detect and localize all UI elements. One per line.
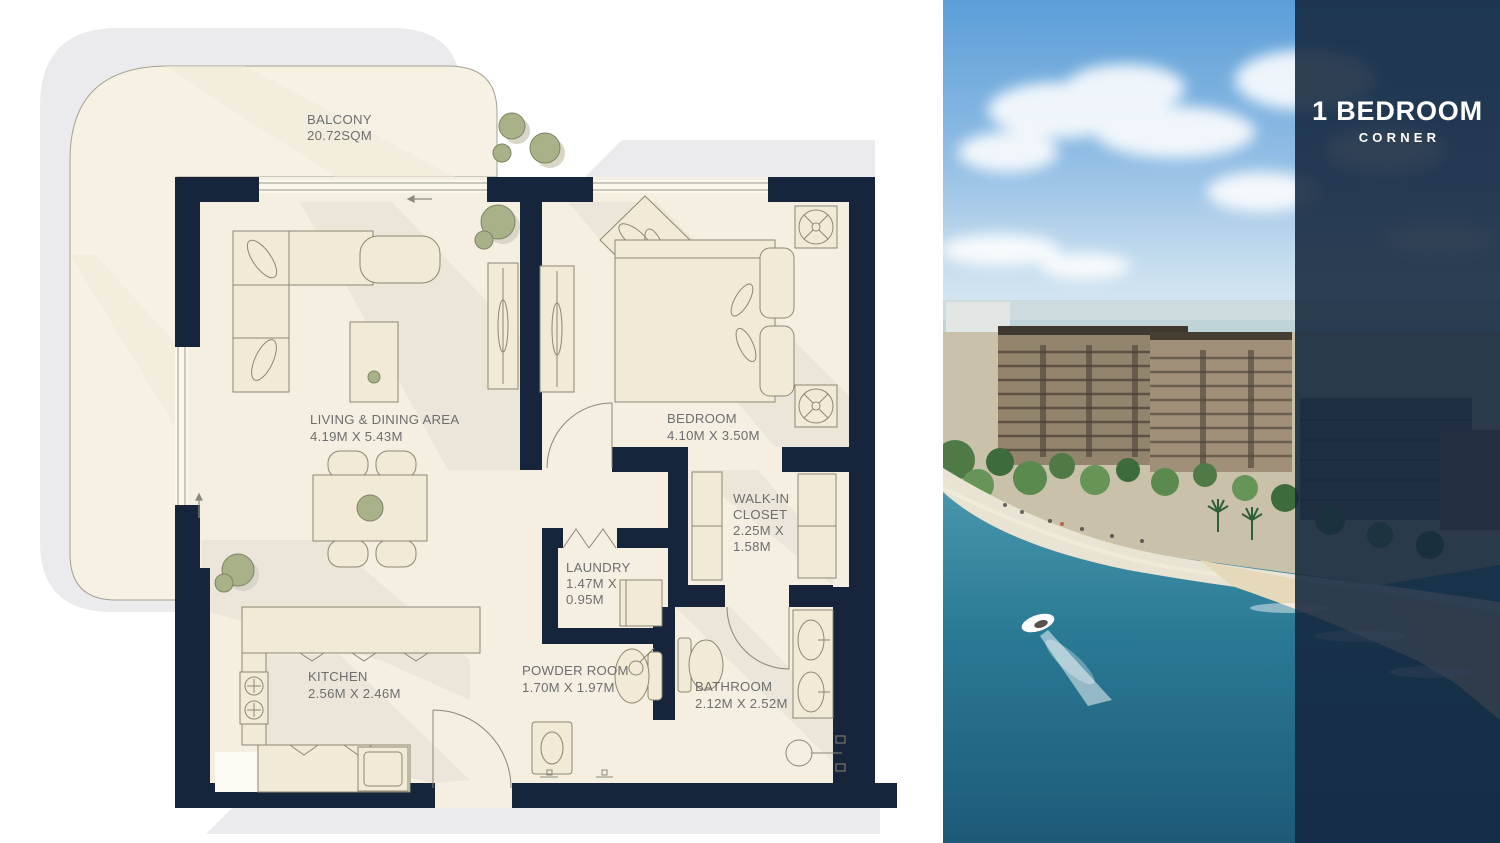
walkin-label-1: WALK-IN (733, 491, 789, 506)
laundry-label: LAUNDRY (566, 560, 631, 575)
kitchen-label: KITCHEN (308, 669, 368, 684)
bedroom-label: BEDROOM (667, 411, 737, 426)
unit-type-panel: 1 BEDROOM CORNER (1295, 97, 1500, 145)
balcony-area-label: 20.72SQM (307, 128, 372, 143)
powder-label: POWDER ROOM (522, 663, 629, 678)
kitchen-dims: 2.56M X 2.46M (308, 686, 401, 701)
laundry-dims-1: 1.47M X (566, 576, 617, 591)
bathroom-dims: 2.12M X 2.52M (695, 696, 788, 711)
walkin-label-2: CLOSET (733, 507, 787, 522)
walkin-dims-1: 2.25M X (733, 523, 784, 538)
living-dining-label: LIVING & DINING AREA (310, 412, 459, 427)
floor-plan: BALCONY 20.72SQM LIVING & DINING AREA 4.… (40, 28, 897, 834)
powder-dims: 1.70M X 1.97M (522, 680, 615, 695)
bathroom-label: BATHROOM (695, 679, 772, 694)
living-dining-dims: 4.19M X 5.43M (310, 429, 403, 444)
unit-type-title: 1 BEDROOM (1295, 97, 1500, 125)
page-canvas: BALCONY 20.72SQM LIVING & DINING AREA 4.… (0, 0, 1500, 843)
page: BALCONY 20.72SQM LIVING & DINING AREA 4.… (0, 0, 1500, 843)
bedroom-dims: 4.10M X 3.50M (667, 428, 760, 443)
laundry-furniture (620, 580, 662, 626)
balcony-label: BALCONY (307, 112, 372, 127)
unit-type-subtitle: CORNER (1295, 130, 1500, 145)
laundry-dims-2: 0.95M (566, 592, 604, 607)
walkin-dims-2: 1.58M (733, 539, 771, 554)
